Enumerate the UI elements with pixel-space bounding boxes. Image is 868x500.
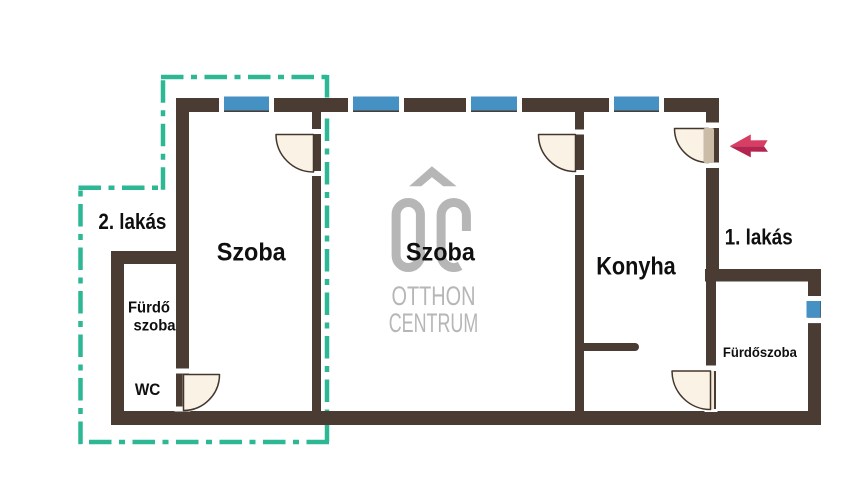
svg-text:1. lakás: 1. lakás — [725, 224, 793, 249]
svg-text:CENTRUM: CENTRUM — [389, 308, 479, 338]
svg-text:Szoba: Szoba — [217, 239, 286, 266]
svg-text:2. lakás: 2. lakás — [98, 209, 166, 234]
svg-text:Fürdőszoba: Fürdőszoba — [723, 345, 797, 360]
svg-text:Fürdő: Fürdő — [128, 300, 170, 317]
svg-text:OTTHON: OTTHON — [392, 281, 476, 311]
svg-text:szoba: szoba — [134, 318, 176, 335]
svg-text:Konyha: Konyha — [596, 253, 676, 281]
svg-text:Szoba: Szoba — [406, 239, 475, 266]
svg-text:WC: WC — [135, 381, 161, 399]
